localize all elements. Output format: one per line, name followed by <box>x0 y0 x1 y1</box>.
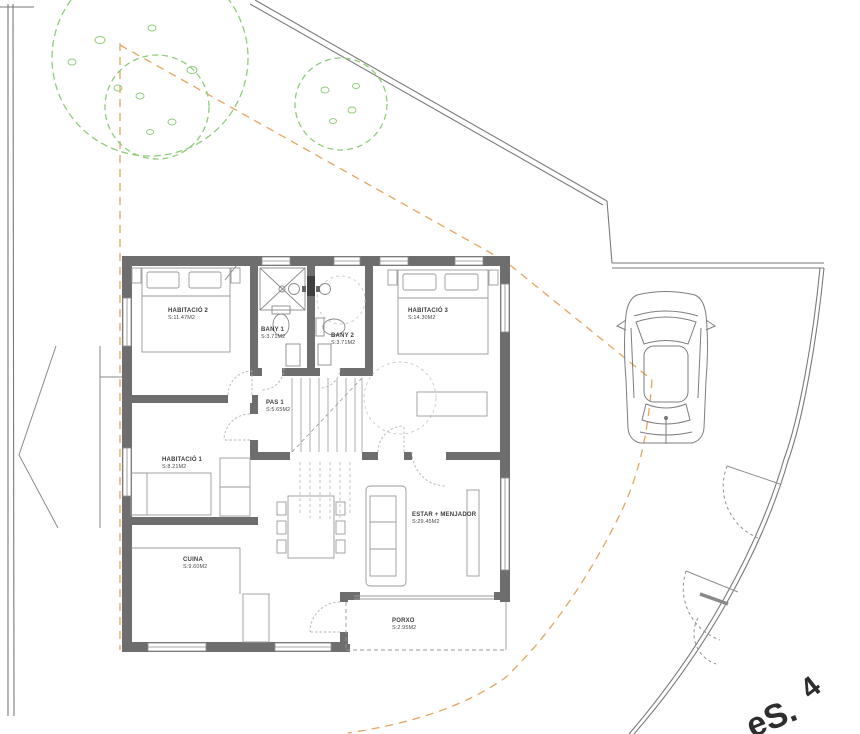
window <box>123 298 131 346</box>
room-area-cuina: S:9.60M2 <box>183 564 207 570</box>
gate-arc <box>723 466 758 538</box>
sofa <box>366 486 406 586</box>
tree-icon <box>52 0 248 156</box>
wall-top <box>122 256 510 266</box>
wall-hab2-bany1 <box>250 256 258 376</box>
corner-text-number: 4 <box>795 670 827 705</box>
gate-arc <box>694 618 716 664</box>
wall-bany2-hab3 <box>365 256 373 376</box>
shower-icon <box>260 268 305 310</box>
wall-bany1-bany2 <box>307 256 315 376</box>
porch <box>346 596 506 650</box>
wall-pier <box>307 276 315 296</box>
room-area-bany2: S:3.71M2 <box>331 340 355 346</box>
setback-diagonal <box>120 45 652 380</box>
room-area-porxo: S:2.95M2 <box>392 625 416 631</box>
room-label-cuina: CUINA <box>183 557 203 563</box>
gate-leaf <box>686 571 738 592</box>
gate-symbols <box>683 466 780 664</box>
boundary-topright-2 <box>250 4 603 205</box>
corner-annotation: eS. 4 <box>741 670 827 734</box>
window <box>455 257 483 265</box>
site-plan-drawing: HABITACIÓ 2 S:11.47M2 BANY 1 S:3.71M2 BA… <box>0 0 860 734</box>
staircase <box>292 378 362 520</box>
floor-plan-svg: HABITACIÓ 2 S:11.47M2 BANY 1 S:3.71M2 BA… <box>0 0 860 734</box>
setback-line <box>120 43 652 733</box>
sink-icon <box>316 284 331 295</box>
room-label-bany1: BANY 1 <box>261 327 285 333</box>
window <box>501 478 509 570</box>
room-label-habitacio1: HABITACIÓ 1 <box>162 455 203 463</box>
corner-text-fragment: eS. <box>741 691 803 734</box>
room-label-habitacio2: HABITACIÓ 2 <box>168 306 209 314</box>
chevron-line <box>19 346 58 528</box>
window <box>262 257 290 265</box>
room-area-habitacio1: S:8.21M2 <box>162 464 186 470</box>
room-area-pas1: S:5.65M2 <box>266 407 290 413</box>
boundary-right-curve <box>634 268 824 734</box>
room-area-habitacio2: S:11.47M2 <box>168 315 195 321</box>
window <box>275 643 331 651</box>
window <box>501 284 509 332</box>
wall-living-stub <box>494 592 510 600</box>
room-label-porxo: PORXO <box>392 618 415 624</box>
gate-leaf <box>727 466 780 484</box>
room-labels: HABITACIÓ 2 S:11.47M2 BANY 1 S:3.71M2 BA… <box>162 306 477 631</box>
car-icon <box>617 292 715 445</box>
bath-fixtures <box>260 268 345 366</box>
dining-table <box>277 496 345 558</box>
wardrobe <box>220 458 250 516</box>
room-label-bany2: BANY 2 <box>331 333 355 339</box>
sideboard <box>467 490 479 576</box>
boundary-right-curve-2 <box>629 268 820 734</box>
window <box>123 448 131 496</box>
tree-icon <box>295 58 387 150</box>
room-label-estar-menjador: ESTAR + MENJADOR <box>412 512 477 518</box>
boundary-left-2 <box>13 4 14 716</box>
room-label-pas1: PAS 1 <box>266 400 284 406</box>
room-area-estar-menjador: S:29.45M2 <box>412 519 440 525</box>
trees <box>52 0 387 159</box>
room-area-habitacio3: S:14.30M2 <box>408 315 436 321</box>
window <box>334 257 360 265</box>
gate-arc <box>683 571 720 640</box>
boundary-step <box>607 201 612 263</box>
boundary-topright <box>255 0 607 201</box>
dresser <box>417 392 487 416</box>
window <box>380 257 408 265</box>
wall-hab1-cuina <box>122 517 258 525</box>
room-label-habitacio3: HABITACIÓ 3 <box>408 306 449 314</box>
window <box>148 643 206 651</box>
sink-icon <box>289 284 307 295</box>
room-area-bany1: S:3.71M2 <box>261 334 285 340</box>
bed <box>131 473 211 515</box>
